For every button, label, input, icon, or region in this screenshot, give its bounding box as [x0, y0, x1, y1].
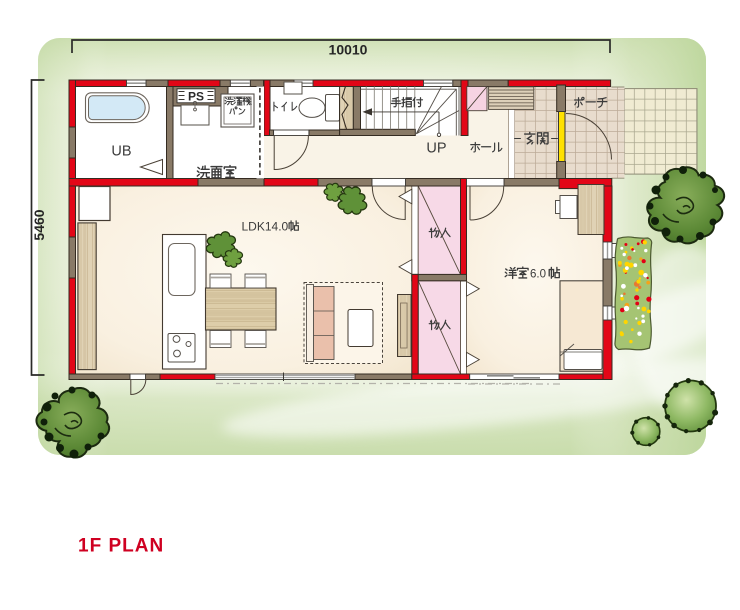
svg-text:1F PLAN: 1F PLAN	[78, 536, 164, 557]
svg-text:6.0: 6.0	[530, 269, 546, 281]
svg-text:UP: UP	[426, 141, 446, 157]
svg-text:10010: 10010	[329, 42, 368, 58]
svg-text:LDK14.0: LDK14.0	[242, 220, 289, 234]
svg-text:UB: UB	[111, 144, 131, 160]
svg-text:5460: 5460	[31, 209, 47, 240]
